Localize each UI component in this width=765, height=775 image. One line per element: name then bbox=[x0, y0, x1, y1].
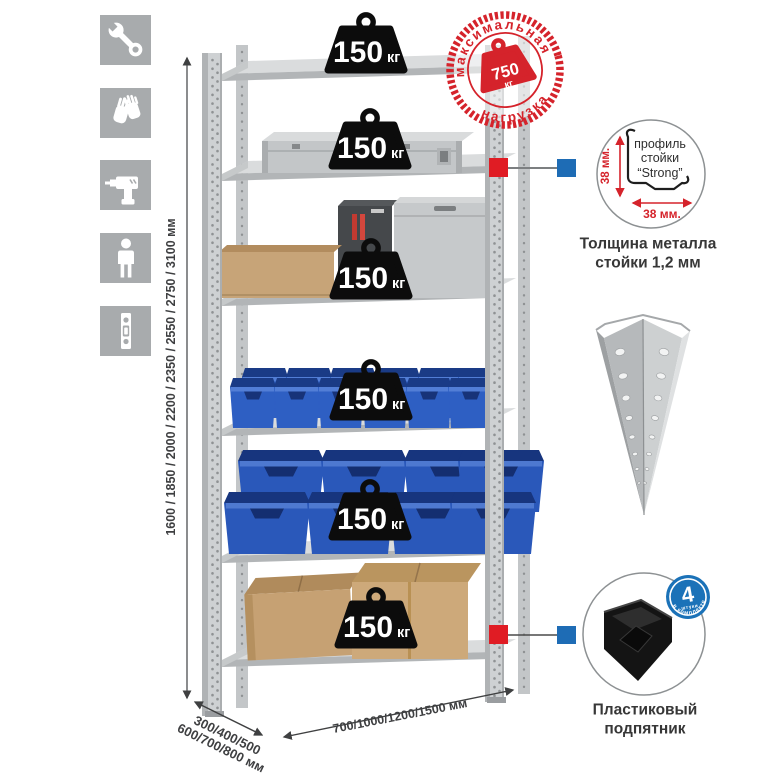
person-icon bbox=[100, 233, 151, 283]
marker-blue-top bbox=[557, 159, 576, 177]
upright-post-icon bbox=[100, 306, 151, 356]
svg-text:профиль: профиль bbox=[634, 137, 686, 151]
foot-detail-circle: 4 штуки в комплекте bbox=[583, 572, 713, 695]
max-load-stamp: 750 кг максимальная нагрузка bbox=[438, 3, 573, 138]
height-dimension-label: 1600 / 1850 / 2000 / 2200 / 2350 / 2550 … bbox=[164, 218, 178, 535]
callout-top bbox=[489, 158, 576, 177]
profile-dim-vertical: 38 мм. bbox=[600, 148, 612, 184]
svg-text:стойки: стойки bbox=[641, 151, 679, 165]
svg-text:кг: кг bbox=[387, 50, 400, 66]
product-infographic: 150 кг 150 кг 150 кг 150 кг bbox=[0, 0, 765, 765]
load-badge-2: 150 кг bbox=[332, 111, 408, 166]
profile-caption: Толщина металла стойки 1,2 мм bbox=[580, 235, 717, 274]
profile-label: профиль стойки “Strong” bbox=[634, 137, 686, 180]
svg-text:150: 150 bbox=[337, 132, 387, 165]
callout-bottom bbox=[489, 625, 576, 644]
profile-detail-circle: 38 мм. 38 мм. профиль стойки “Strong” bbox=[597, 120, 705, 228]
drill-icon bbox=[100, 160, 151, 210]
foot-caption: Пластиковый подпятник bbox=[593, 701, 698, 740]
svg-text:кг: кг bbox=[392, 276, 405, 292]
angle-post-photo bbox=[596, 315, 690, 515]
svg-text:кг: кг bbox=[397, 625, 410, 641]
svg-text:150: 150 bbox=[338, 383, 388, 416]
load-badge-1: 150 кг bbox=[328, 15, 404, 70]
svg-text:кг: кг bbox=[391, 517, 404, 533]
profile-dim-horizontal: 38 мм. bbox=[643, 207, 681, 221]
svg-text:150: 150 bbox=[333, 36, 383, 69]
wrench-icon bbox=[100, 15, 151, 65]
foot-caption-line1: Пластиковый bbox=[593, 701, 698, 720]
marker-red-bottom bbox=[489, 625, 508, 644]
profile-caption-line1: Толщина металла bbox=[580, 235, 717, 254]
svg-text:150: 150 bbox=[338, 262, 388, 295]
svg-text:150: 150 bbox=[343, 611, 393, 644]
marker-red-top bbox=[489, 158, 508, 177]
profile-caption-line2: стойки 1,2 мм bbox=[580, 254, 717, 273]
svg-text:кг: кг bbox=[392, 397, 405, 413]
marker-blue-bottom bbox=[557, 626, 576, 644]
svg-text:150: 150 bbox=[337, 503, 387, 536]
svg-text:“Strong”: “Strong” bbox=[637, 166, 682, 180]
foot-caption-line2: подпятник bbox=[593, 720, 698, 739]
svg-text:кг: кг bbox=[391, 146, 404, 162]
gloves-icon bbox=[100, 88, 151, 138]
